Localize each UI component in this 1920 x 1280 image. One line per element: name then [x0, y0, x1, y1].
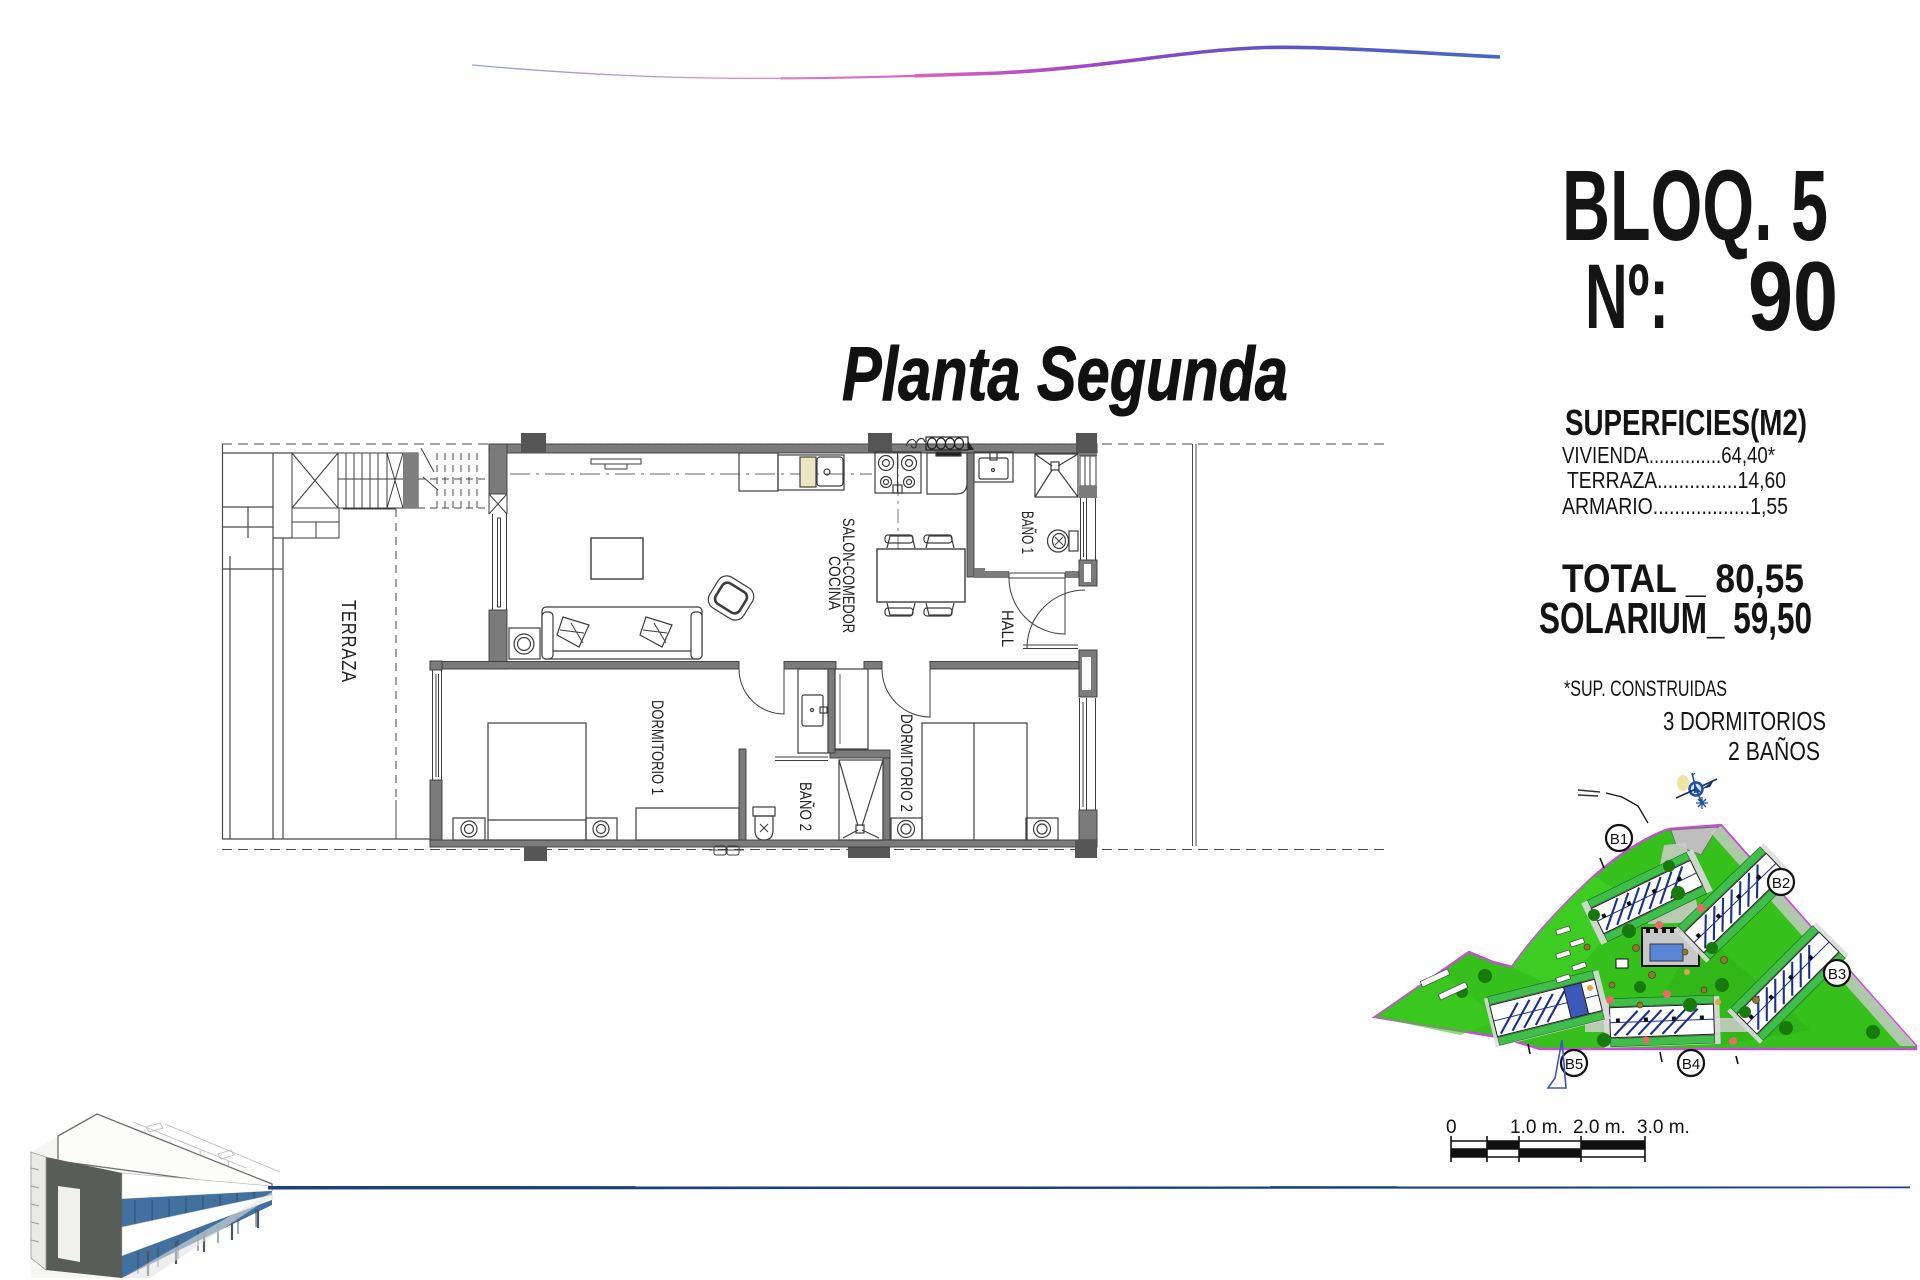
svg-text:TERRAZA: TERRAZA — [337, 600, 359, 683]
svg-text:90: 90 — [1748, 241, 1838, 351]
svg-text:Planta Segunda: Planta Segunda — [842, 332, 1288, 417]
svg-text:ARMARIO..................1,55: ARMARIO..................1,55 — [1562, 493, 1788, 519]
svg-text:Nº:: Nº: — [1585, 246, 1669, 348]
svg-text:BAÑO 2: BAÑO 2 — [796, 782, 815, 831]
svg-text:SOLARIUM_ 59,50: SOLARIUM_ 59,50 — [1539, 594, 1812, 643]
svg-text:B4: B4 — [1682, 1056, 1700, 1073]
svg-text:B5: B5 — [1565, 1056, 1583, 1073]
svg-text:3.0 m.: 3.0 m. — [1637, 1117, 1690, 1138]
svg-text:B2: B2 — [1772, 875, 1790, 892]
svg-text:3 DORMITORIOS: 3 DORMITORIOS — [1663, 706, 1826, 736]
svg-text:1.0 m.: 1.0 m. — [1510, 1117, 1563, 1138]
svg-text:B1: B1 — [1610, 831, 1628, 848]
svg-text:BAÑO 1: BAÑO 1 — [1018, 511, 1037, 554]
svg-text:2 BAÑOS: 2 BAÑOS — [1728, 736, 1820, 766]
svg-text:SUPERFICIES(M2): SUPERFICIES(M2) — [1565, 402, 1807, 443]
svg-text:DORMITORIO 2: DORMITORIO 2 — [897, 714, 916, 812]
svg-text:VIVIENDA..............64,40*: VIVIENDA..............64,40* — [1562, 442, 1775, 468]
svg-text:COCINA: COCINA — [825, 556, 844, 611]
svg-text:2.0 m.: 2.0 m. — [1573, 1117, 1626, 1138]
svg-text:HALL: HALL — [998, 610, 1017, 647]
svg-text:B3: B3 — [1828, 966, 1846, 983]
svg-text:*SUP. CONSTRUIDAS: *SUP. CONSTRUIDAS — [1564, 676, 1727, 701]
svg-text:0: 0 — [1446, 1117, 1457, 1138]
svg-text:DORMITORIO 1: DORMITORIO 1 — [648, 700, 667, 795]
svg-text:TERRAZA...............14,60: TERRAZA...............14,60 — [1567, 467, 1786, 493]
